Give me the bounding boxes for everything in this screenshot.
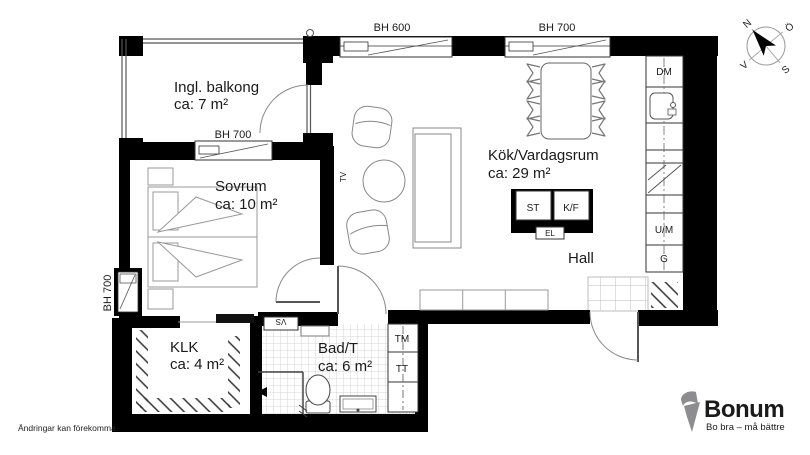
bonum-tagline: Bo bra – må bättre bbox=[706, 422, 785, 433]
room-area-kitchen-living: ca: 29 m² bbox=[488, 165, 551, 182]
compass-south-label: S bbox=[780, 64, 792, 77]
compass-east-label: Ö bbox=[783, 20, 797, 34]
coat-rail-hall bbox=[651, 282, 678, 308]
window-kitchen-left bbox=[340, 37, 452, 57]
living-furniture bbox=[345, 105, 461, 257]
wall-right bbox=[683, 36, 717, 326]
tv-bench bbox=[330, 146, 334, 202]
room-area-closet: ca: 4 m² bbox=[170, 356, 224, 373]
balcony-door bbox=[260, 85, 311, 133]
wardrobe-label: G bbox=[660, 254, 668, 265]
water-heater-label: VS bbox=[276, 317, 287, 326]
hall-sideboard bbox=[420, 290, 548, 310]
toilet bbox=[306, 375, 330, 413]
wall-bedroom-top-left bbox=[133, 142, 195, 160]
wall-closet-top bbox=[130, 316, 180, 328]
tv-label: TV bbox=[339, 171, 348, 182]
bonum-wordmark: Bonum bbox=[704, 396, 784, 423]
window-label-bh700-bedroom: BH 700 bbox=[215, 129, 252, 141]
wall-left-bedroom bbox=[119, 158, 130, 272]
sofa bbox=[413, 128, 461, 248]
room-area-bedroom: ca: 10 m² bbox=[215, 196, 278, 213]
floorplan-page: Ingl. balkong ca: 7 m² Sovrum ca: 10 m² … bbox=[0, 0, 810, 455]
oven-micro-label: U/M bbox=[655, 225, 673, 236]
bathroom-shelf bbox=[301, 326, 329, 336]
coffee-table bbox=[363, 160, 405, 202]
wall-bedroom-top-right bbox=[272, 142, 303, 160]
counter-outline bbox=[646, 56, 683, 272]
window-kitchen-right bbox=[505, 37, 610, 57]
armchair-1 bbox=[350, 105, 393, 150]
room-area-bathroom: ca: 6 m² bbox=[318, 358, 372, 375]
window-label-bh700-top: BH 700 bbox=[539, 22, 576, 34]
fridge-freezer-label: K/F bbox=[563, 203, 579, 214]
wall-hall-bottom-right bbox=[638, 310, 718, 326]
compass-west-label: V bbox=[739, 59, 751, 72]
kitchen-counter bbox=[646, 56, 683, 272]
dryer-label: TT bbox=[396, 364, 408, 375]
entrance-door bbox=[590, 312, 638, 362]
room-label-closet: KLK bbox=[170, 339, 198, 356]
bonum-logo: Bonum Bo bra – må bättre bbox=[681, 391, 785, 433]
cleaning-cabinet-label: ST bbox=[527, 203, 540, 214]
washbasin bbox=[340, 396, 376, 412]
room-label-kitchen-living: Kök/Vardagsrum bbox=[488, 147, 599, 164]
wall-closet-bathroom bbox=[250, 316, 262, 416]
entrance-mat bbox=[588, 277, 648, 311]
window-bedroom-left bbox=[114, 268, 142, 316]
dining-table bbox=[541, 63, 591, 139]
electrical-label: EL bbox=[545, 229, 555, 238]
balcony-post-ne bbox=[303, 36, 333, 63]
room-area-balcony: ca: 7 m² bbox=[174, 96, 228, 113]
room-label-bedroom: Sovrum bbox=[215, 178, 267, 195]
closet-sliding-door bbox=[216, 314, 254, 323]
bedroom-door bbox=[276, 258, 320, 302]
room-label-balcony: Ingl. balkong bbox=[174, 79, 259, 96]
bonum-ribbon-icon bbox=[681, 391, 700, 432]
kitchen-sink bbox=[650, 93, 676, 119]
dining-set bbox=[527, 63, 605, 139]
window-label-bh700-left: BH 700 bbox=[102, 275, 114, 312]
balcony-doorjamb bbox=[306, 63, 322, 85]
balcony-post-se bbox=[303, 133, 333, 160]
nightstand-top bbox=[148, 168, 173, 185]
nightstand-bottom bbox=[148, 289, 173, 309]
wall-bottom bbox=[112, 414, 428, 432]
room-label-bathroom: Bad/T bbox=[318, 340, 358, 357]
room-label-hall: Hall bbox=[568, 250, 594, 267]
compass-needle-icon bbox=[746, 25, 776, 56]
washer-label: TM bbox=[395, 334, 409, 345]
floorplan-drawing: Ingl. balkong ca: 7 m² Sovrum ca: 10 m² … bbox=[0, 0, 810, 455]
armchair-2 bbox=[345, 208, 392, 256]
compass-rose: N Ö S V bbox=[719, 0, 810, 95]
window-bedroom-top bbox=[195, 141, 272, 160]
bathroom-door bbox=[338, 266, 386, 314]
compass-north-label: N bbox=[741, 18, 754, 31]
wall-left-lower bbox=[112, 318, 132, 432]
dishwasher-label: DM bbox=[656, 67, 672, 78]
disclaimer-text: Ändringar kan förekomma. bbox=[18, 423, 118, 433]
window-label-bh600: BH 600 bbox=[374, 22, 411, 34]
drainpipe-marker bbox=[307, 30, 314, 37]
